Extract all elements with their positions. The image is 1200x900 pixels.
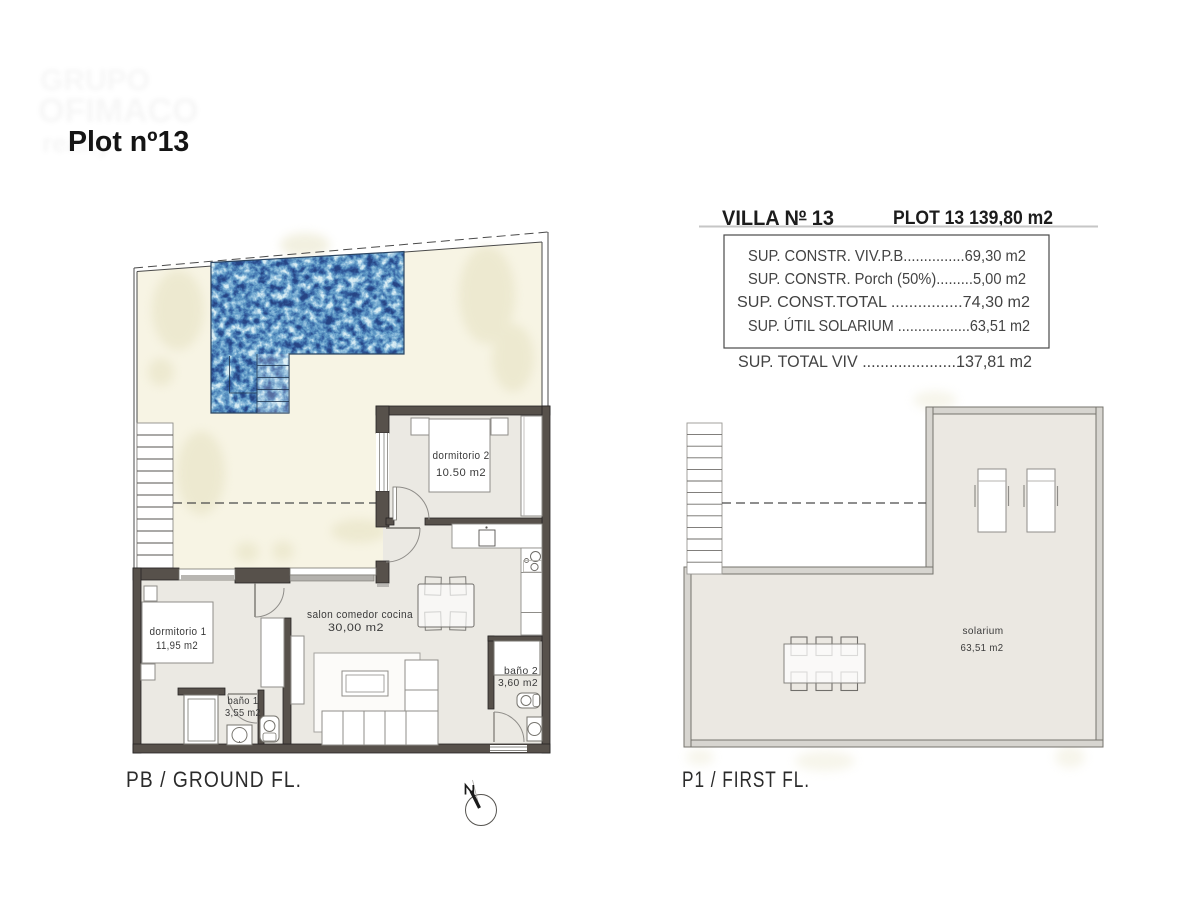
svg-text:SUP. ÚTIL SOLARIUM ...........: SUP. ÚTIL SOLARIUM ..................63,… — [748, 318, 1030, 335]
svg-text:PB / GROUND FL.: PB / GROUND FL. — [126, 767, 302, 792]
svg-text:Plot nº13: Plot nº13 — [68, 126, 189, 158]
svg-text:3,60 m2: 3,60 m2 — [498, 677, 538, 689]
svg-text:solarium: solarium — [963, 625, 1004, 637]
svg-text:OFIMACO: OFIMACO — [38, 92, 199, 130]
svg-text:SUP. CONST.TOTAL .............: SUP. CONST.TOTAL ................74,30 m… — [737, 294, 1030, 311]
svg-text:SUP. CONSTR. VIV.P.B..........: SUP. CONSTR. VIV.P.B...............69,30… — [748, 248, 1026, 265]
svg-text:10.50 m2: 10.50 m2 — [436, 467, 486, 479]
svg-text:baño 2: baño 2 — [504, 665, 538, 677]
svg-text:SUP. CONSTR. Porch (50%)......: SUP. CONSTR. Porch (50%).........5,00 m2 — [748, 271, 1026, 288]
svg-text:salon comedor cocina: salon comedor cocina — [307, 609, 413, 621]
svg-text:SUP. TOTAL VIV ...............: SUP. TOTAL VIV .....................137,… — [738, 353, 1032, 371]
svg-text:11,95 m2: 11,95 m2 — [156, 640, 198, 652]
svg-text:dormitorio 1: dormitorio 1 — [150, 626, 207, 638]
svg-text:dormitorio 2: dormitorio 2 — [433, 450, 490, 462]
svg-text:P1 / FIRST FL.: P1 / FIRST FL. — [682, 767, 810, 792]
svg-text:baño 1: baño 1 — [228, 695, 259, 707]
svg-text:63,51 m2: 63,51 m2 — [961, 642, 1004, 654]
svg-text:30,00 m2: 30,00 m2 — [328, 622, 384, 634]
svg-text:3,55 m2: 3,55 m2 — [225, 707, 261, 719]
